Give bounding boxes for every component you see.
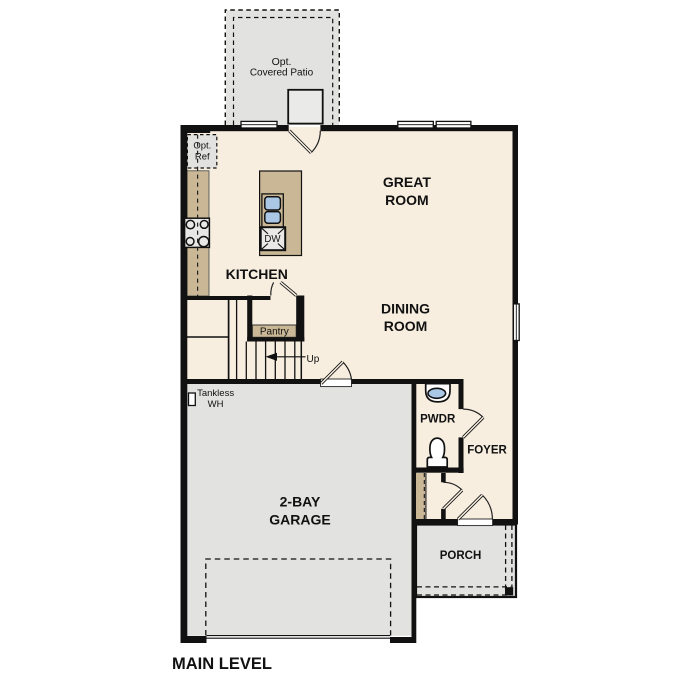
svg-text:Opt.: Opt. xyxy=(272,56,292,68)
svg-text:MAIN LEVEL: MAIN LEVEL xyxy=(172,655,272,673)
svg-text:Pantry: Pantry xyxy=(260,327,289,338)
svg-text:FOYER: FOYER xyxy=(467,444,507,456)
svg-text:PWDR: PWDR xyxy=(420,413,456,425)
svg-text:Opt.: Opt. xyxy=(193,141,211,152)
svg-text:ROOM: ROOM xyxy=(385,192,429,208)
svg-text:GREAT: GREAT xyxy=(383,174,431,190)
svg-text:Up: Up xyxy=(307,354,320,365)
svg-text:ROOM: ROOM xyxy=(384,318,428,334)
svg-text:DINING: DINING xyxy=(381,300,430,316)
svg-text:Covered Patio: Covered Patio xyxy=(250,67,314,78)
svg-text:WH: WH xyxy=(208,399,224,410)
svg-text:GARAGE: GARAGE xyxy=(269,511,330,527)
svg-text:KITCHEN: KITCHEN xyxy=(226,266,288,282)
svg-text:2-BAY: 2-BAY xyxy=(280,494,321,510)
svg-text:DW: DW xyxy=(264,234,281,245)
svg-text:Tankless: Tankless xyxy=(197,388,234,399)
svg-text:PORCH: PORCH xyxy=(440,550,482,562)
